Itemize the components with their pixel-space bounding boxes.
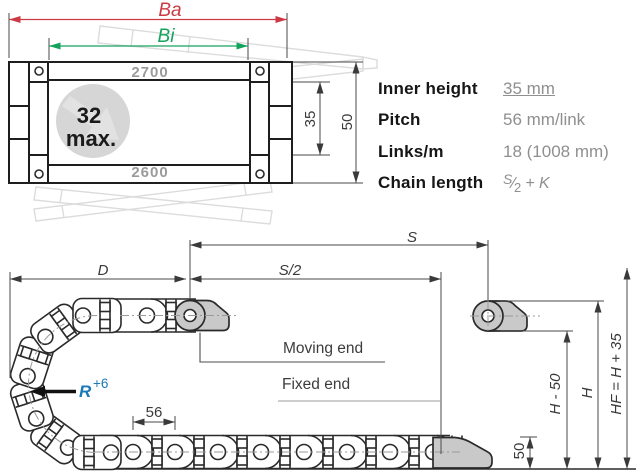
dim-35-label: 35 — [302, 111, 319, 128]
spec-label: Links/m — [378, 142, 503, 162]
dim-d-label: D — [98, 262, 109, 279]
spec-value: 18 (1008 mm) — [503, 142, 609, 162]
spec-value: 35 mm — [503, 79, 555, 99]
pin-hole — [35, 170, 43, 178]
pin-hole — [256, 170, 264, 178]
dim-h-label: H — [579, 387, 596, 398]
spec-table: Inner height 35 mm Pitch 56 mm/link Link… — [378, 73, 640, 199]
bottom-band-part-number: 2600 — [131, 164, 168, 181]
radius-sup-label: +6 — [93, 376, 108, 391]
datasheet-page: 32 max. 2700 2600 Ba Bi 35 — [0, 0, 640, 475]
dim-inner-height: 35 — [293, 82, 330, 155]
dim-h50-label: H - 50 — [547, 373, 564, 415]
dim-s2-label: S/2 — [279, 262, 302, 279]
cross-section-drawing: 32 max. 2700 2600 Ba Bi 35 — [0, 0, 390, 232]
max-cable-badge: 32 max. — [56, 84, 130, 158]
max-cable-unit: max. — [66, 126, 116, 151]
spec-row-chain-length: Chain length S⁄2+ K — [378, 168, 640, 200]
chain-runs — [73, 299, 462, 470]
dim-hf-label: HF = H + 35 — [608, 333, 625, 415]
side-view-drawing: S S/2 D 56 R +6 Moving end Fixed end 50 … — [0, 228, 640, 475]
fixed-end-bracket — [433, 438, 492, 469]
spec-chain-length-formula: S⁄2+ K — [503, 173, 550, 193]
dim-pitch-label: 56 — [146, 404, 163, 421]
top-band-part-number: 2700 — [131, 64, 168, 81]
dim-bi-label: Bi — [158, 26, 176, 47]
moving-end-label: Moving end — [283, 340, 363, 357]
spec-label: Inner height — [378, 79, 503, 99]
spec-row-links-per-m: Links/m 18 (1008 mm) — [378, 136, 640, 168]
dim-ba-label: Ba — [158, 0, 181, 21]
dim-ba: Ba — [9, 0, 287, 58]
max-cable-value: 32 — [77, 103, 101, 128]
radius-label: R — [79, 382, 92, 401]
spec-label: Pitch — [378, 110, 503, 130]
spec-value: 56 mm/link — [503, 110, 585, 130]
fixed-end-label: Fixed end — [282, 376, 350, 393]
dim-50-label: 50 — [511, 443, 528, 460]
spec-row-pitch: Pitch 56 mm/link — [378, 105, 640, 137]
dim-50-label: 50 — [339, 114, 356, 131]
dim-s-label: S — [407, 229, 417, 246]
pin-hole — [256, 67, 264, 75]
spec-label: Chain length — [378, 173, 503, 193]
spec-row-inner-height: Inner height 35 mm — [378, 73, 640, 105]
pin-hole — [35, 67, 43, 75]
